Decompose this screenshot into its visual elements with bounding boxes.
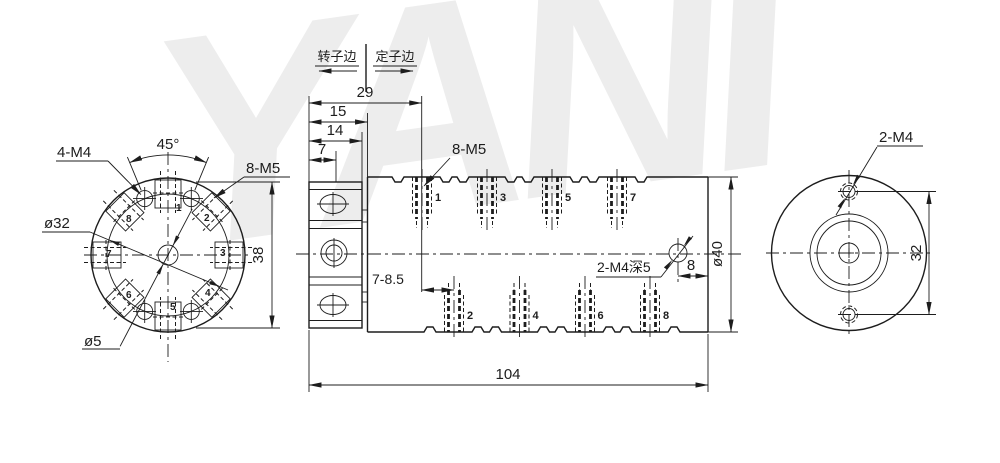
dims-left-stack: 29 15 14 7	[309, 84, 422, 292]
angle-label: 45°	[157, 136, 180, 153]
svg-text:8-M5: 8-M5	[452, 141, 486, 158]
svg-text:5: 5	[170, 302, 176, 313]
svg-text:7: 7	[318, 141, 326, 158]
svg-text:8: 8	[687, 257, 695, 274]
slip-ring-drawing: 转子边 定子边	[0, 0, 1000, 463]
left-view: 1 2 3 4 5 6 7 8 45° 4-M4	[42, 136, 290, 362]
svg-text:104: 104	[495, 366, 520, 383]
svg-text:14: 14	[327, 122, 344, 139]
svg-text:ø5: ø5	[84, 333, 102, 350]
rotor-flange	[309, 182, 368, 328]
svg-text:4: 4	[533, 310, 540, 322]
svg-text:3: 3	[500, 192, 506, 204]
dim-104: 104	[309, 330, 708, 392]
stator-side-label: 定子边	[375, 49, 414, 64]
svg-text:29: 29	[357, 84, 374, 101]
label-2m4-deep: 2-M4深5	[597, 259, 651, 275]
svg-text:38: 38	[250, 247, 267, 264]
right-view: 2-M4 32	[766, 129, 936, 338]
svg-text:7: 7	[106, 249, 112, 260]
svg-text:6: 6	[598, 310, 604, 322]
svg-text:32: 32	[908, 245, 925, 262]
ring-holes: 1 3 5 7 2 4 6 8	[413, 169, 670, 340]
svg-text:7-8.5: 7-8.5	[372, 271, 404, 287]
dim-pitch: 7-8.5	[372, 271, 454, 290]
engineering-drawing-page: YANI	[0, 0, 1000, 463]
svg-text:8: 8	[663, 310, 669, 322]
rotor-side-label: 转子边	[317, 49, 356, 64]
svg-text:5: 5	[565, 192, 571, 204]
svg-text:8: 8	[126, 214, 132, 225]
middle-view: 1 3 5 7 2 4 6 8 29 15 14	[296, 84, 742, 392]
svg-text:2-M4: 2-M4	[879, 129, 913, 146]
label-4m4: 4-M4	[56, 144, 141, 195]
svg-text:7: 7	[630, 192, 636, 204]
label-d32: ø32	[42, 215, 228, 290]
label-8m5-left: 8-M5	[214, 160, 290, 198]
svg-text:1: 1	[176, 203, 182, 214]
svg-text:3: 3	[220, 248, 226, 259]
svg-text:8-M5: 8-M5	[246, 160, 280, 177]
svg-text:6: 6	[126, 290, 132, 301]
svg-text:ø32: ø32	[44, 215, 70, 232]
svg-text:1: 1	[435, 192, 441, 204]
svg-text:ø40: ø40	[709, 241, 726, 267]
svg-text:4: 4	[205, 288, 211, 299]
stator-body	[296, 177, 742, 332]
label-8m5-middle: 8-M5	[424, 141, 486, 186]
svg-text:2: 2	[467, 310, 473, 322]
svg-text:4-M4: 4-M4	[57, 144, 91, 161]
dim-d40: ø40	[708, 177, 738, 332]
stator-m4-hole: 2-M4深5 8	[596, 236, 708, 283]
svg-text:2: 2	[204, 213, 210, 224]
svg-text:15: 15	[330, 103, 347, 120]
